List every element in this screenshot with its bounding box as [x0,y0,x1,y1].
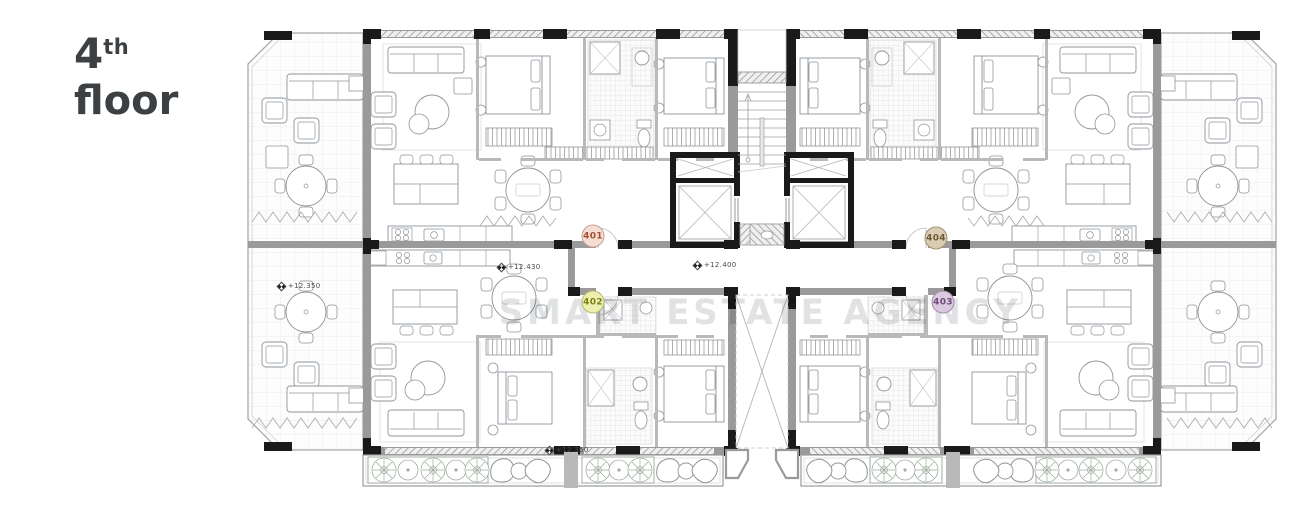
wardrobe-icon [486,339,552,355]
staircase [738,92,786,172]
level-marker-balcony: +12.350 [546,446,588,454]
kitchen-island-icon [394,155,458,204]
closet-icon [545,147,653,159]
floor-ordinal: th [103,35,129,59]
wardrobe-icon [486,128,552,146]
lounge-chair-icon [294,362,319,387]
page-title: 4th floor [74,30,178,124]
pebble-seat-icon [657,459,680,482]
balcony-pier [726,450,748,478]
light-well [736,295,788,448]
kitchen-counter-icon [368,250,510,266]
level-diamond-icon [693,260,703,270]
floor-number: 4 [74,29,103,78]
bathroom [588,40,654,156]
level-marker-corridor: +12.400 [694,261,736,269]
balcony-strip [363,452,723,488]
corner-column [264,442,292,451]
kitchen-counter-icon [388,226,512,243]
pebble-seat-icon [491,459,514,482]
sink-icon [633,377,647,391]
lounge-chair-icon [262,98,287,123]
balcony-pier [776,450,798,478]
toilet-icon [638,129,650,147]
corner-column [264,31,292,40]
unit-badge-403[interactable]: 403 [932,291,955,314]
floor-plan-page: 4th floor [0,0,1316,506]
level-diamond-icon [545,445,555,455]
toilet-icon [635,411,647,429]
floor-plan-drawing [0,0,1316,506]
level-diamond-icon [277,281,287,291]
bed-icon [654,366,724,422]
unit-badge-404[interactable]: 404 [925,227,948,250]
level-marker-terrace: +12.350 [278,282,320,290]
lounge-chair-icon [294,118,319,143]
lounge-chair-icon [262,342,287,367]
bed-icon [654,58,724,114]
right-wing-mirror [750,29,1276,488]
level-marker-unit402: +12.430 [498,263,540,271]
sink-icon [635,51,649,65]
wardrobe-icon [664,340,724,355]
left-wing [248,29,774,488]
floor-word: floor [74,79,178,124]
entrance-recess [738,30,786,72]
balcony-divider [564,452,578,488]
bed-icon [476,56,550,115]
unit-badge-402[interactable]: 402 [582,291,605,314]
sink-icon [640,302,652,314]
kitchen-island-icon [393,290,457,335]
level-diamond-icon [497,262,507,272]
unit-badge-401[interactable]: 401 [582,225,605,248]
bed-icon [488,363,552,435]
wardrobe-icon [664,128,724,146]
